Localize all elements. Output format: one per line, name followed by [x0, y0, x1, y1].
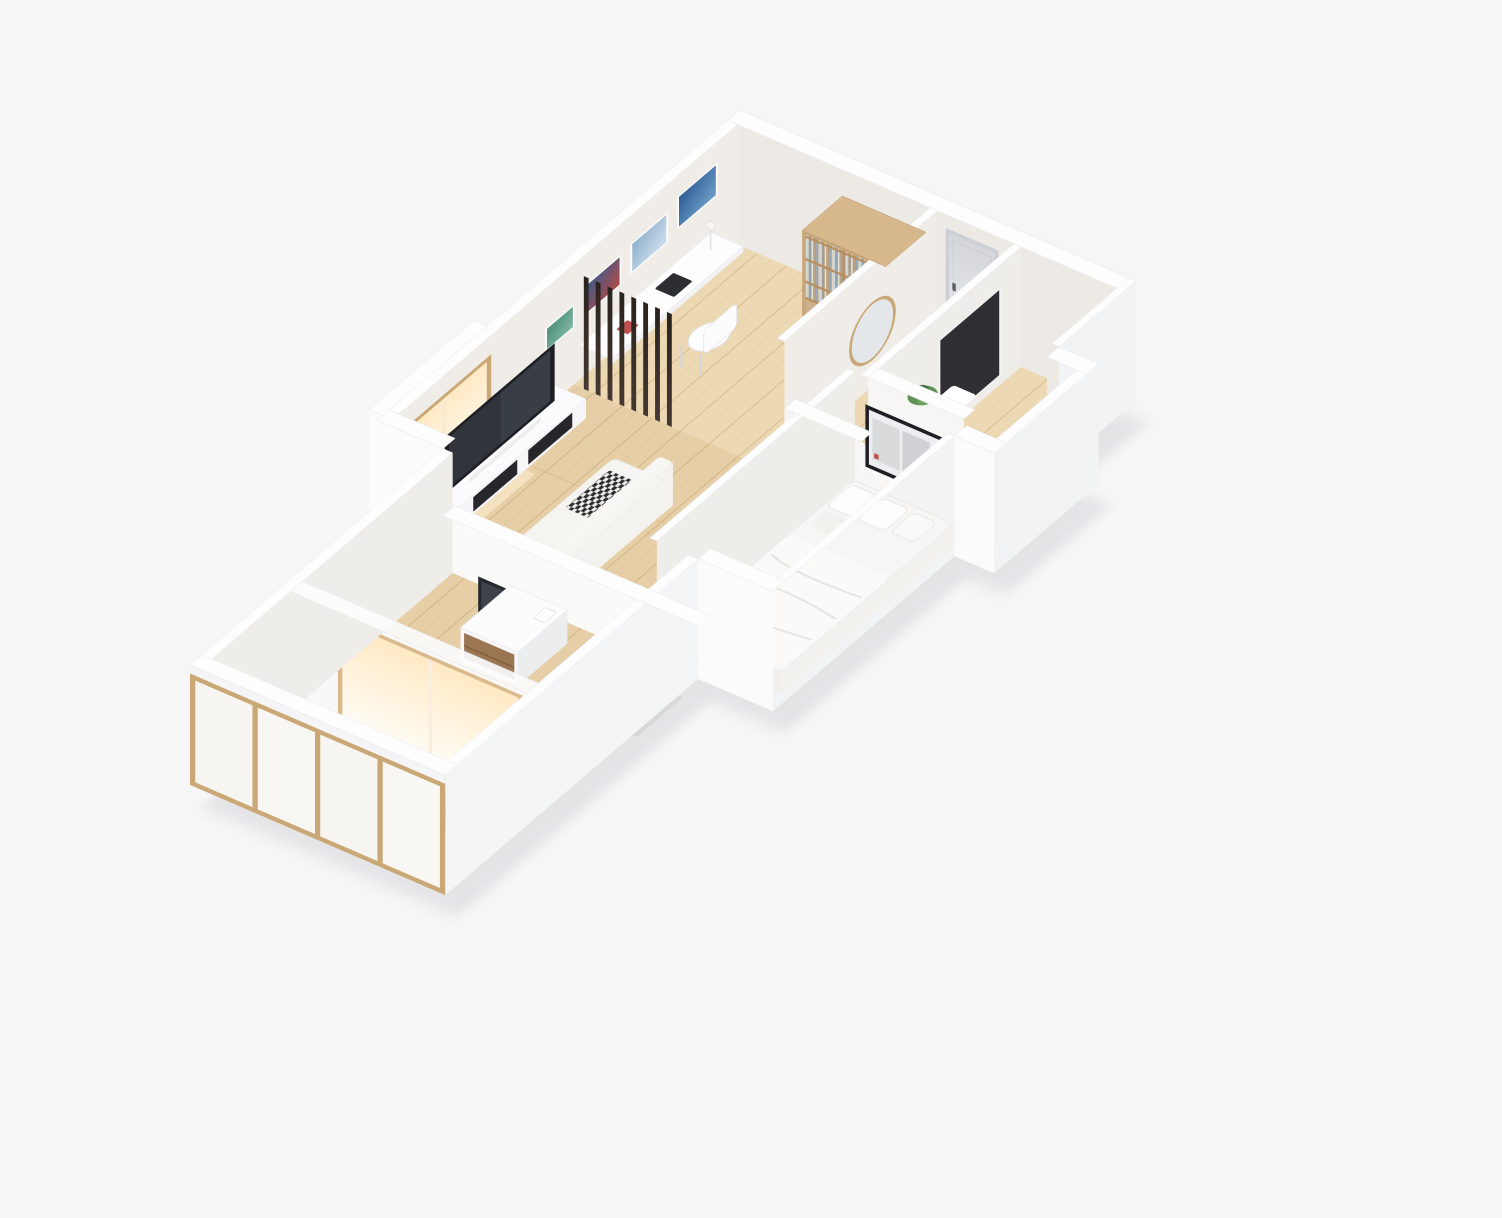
- door-handle: [952, 283, 956, 292]
- floor-plan-render: [0, 0, 1502, 1218]
- floor-plan-page: [0, 0, 1502, 1218]
- protrusion-south-face: [955, 436, 995, 573]
